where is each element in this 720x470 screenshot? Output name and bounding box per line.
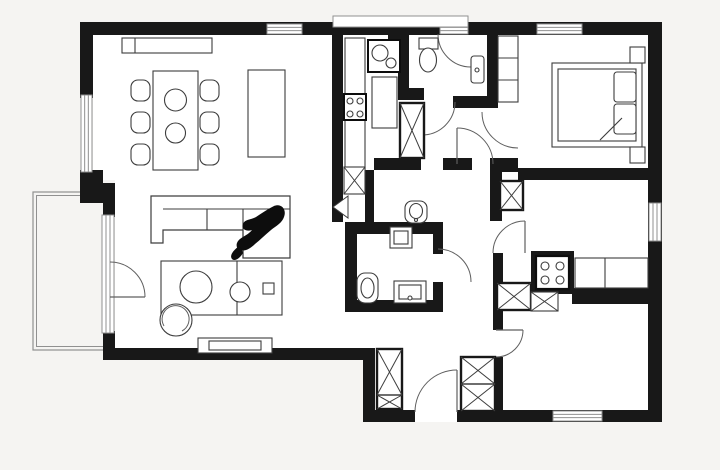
kitchenette-cooktop (536, 256, 569, 289)
dining-chair (131, 112, 150, 133)
nightstand (630, 47, 645, 63)
tall-cabinet (372, 77, 397, 128)
wall-wc2-north-a (374, 158, 421, 170)
entrance-door-gap (415, 410, 457, 422)
toilet-tank (419, 38, 438, 49)
window-top-1 (267, 24, 302, 34)
burner (541, 276, 549, 284)
nightstand (630, 147, 645, 163)
wall-bath2-east-b (433, 282, 443, 300)
wall-bottom (363, 410, 662, 422)
pillow (614, 104, 636, 134)
burner (541, 262, 549, 270)
entry-wardrobe (377, 349, 402, 409)
floor-plan-svg (0, 0, 720, 470)
dining-chair (200, 144, 219, 165)
wall-bath1-south (398, 88, 424, 100)
burner (556, 276, 564, 284)
bidet-bowl (410, 204, 423, 219)
wall-left-upper (80, 22, 93, 98)
tv (209, 341, 261, 350)
plate (166, 123, 186, 143)
kitchen-island (248, 70, 285, 157)
window-right (649, 203, 661, 241)
wall-hall-mid (453, 96, 487, 108)
pouf (160, 304, 192, 336)
wall-wc2-west (365, 170, 374, 222)
wall-bedroom-south (518, 168, 648, 180)
bathroom-sink-tap (408, 296, 412, 300)
decor-tray (180, 271, 212, 303)
plate (165, 89, 187, 111)
burner (347, 98, 353, 104)
built-in-closet (498, 36, 518, 102)
wall-bath2-west (345, 222, 357, 312)
dining-chair (131, 80, 150, 101)
bidet-tap (415, 219, 418, 222)
window-top-3 (537, 24, 582, 34)
burner (556, 262, 564, 270)
window-bottom (553, 411, 602, 421)
floor-plan-canvas (0, 0, 720, 470)
decor-box (263, 283, 274, 294)
dining-chair (200, 80, 219, 101)
washbasin-drain (475, 68, 479, 72)
dining-chair (200, 112, 219, 133)
sink-bowl (386, 58, 396, 68)
pillow (614, 72, 636, 102)
wall-left-step (103, 183, 115, 217)
dining-table (153, 71, 198, 170)
washing-machine-door (394, 231, 408, 244)
wall-left-mid (80, 170, 103, 203)
balcony-glass-door (102, 215, 114, 333)
wall-bath1-east (487, 35, 498, 108)
decor-bowl (230, 282, 250, 302)
window-left (81, 95, 92, 172)
dining-chair (131, 144, 150, 165)
sink-bowl (372, 45, 388, 61)
burner (347, 111, 353, 117)
wall-kitchen-west (332, 35, 343, 222)
wall-under-counter (572, 288, 650, 304)
burner (357, 111, 363, 117)
toilet2-bowl (361, 278, 374, 298)
wall-bath2-east-a (433, 234, 443, 254)
toilet-bowl (420, 48, 437, 72)
kitchenette-counter (575, 258, 648, 288)
burner (357, 98, 363, 104)
window-band (333, 16, 468, 27)
